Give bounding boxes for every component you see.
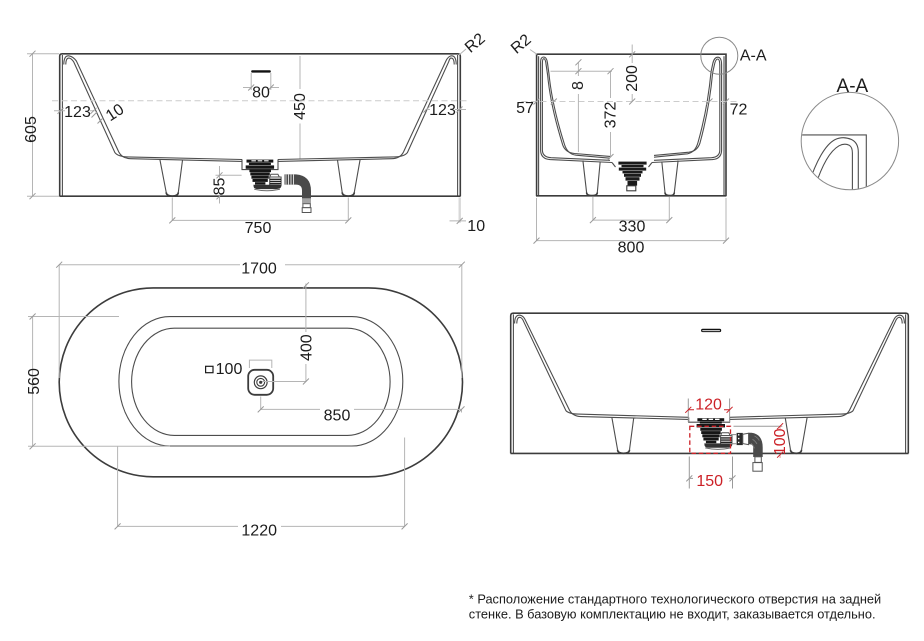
- svg-text:1220: 1220: [241, 523, 277, 540]
- svg-text:85: 85: [212, 178, 229, 196]
- svg-text:100: 100: [772, 428, 789, 455]
- svg-text:800: 800: [618, 240, 645, 257]
- svg-text:A-A: A-A: [837, 76, 869, 97]
- svg-text:123: 123: [429, 102, 456, 119]
- svg-text:57: 57: [516, 100, 534, 117]
- svg-text:стенке. В базовую комплектацию: стенке. В базовую комплектацию не входит…: [469, 607, 876, 622]
- svg-text:80: 80: [252, 85, 270, 102]
- svg-text:400: 400: [299, 334, 316, 361]
- svg-text:200: 200: [624, 65, 641, 92]
- svg-text:* Расположение стандартного те: * Расположение стандартного технологичес…: [469, 591, 881, 606]
- svg-text:8: 8: [570, 81, 587, 90]
- svg-text:150: 150: [696, 473, 723, 490]
- svg-text:372: 372: [603, 102, 620, 129]
- svg-text:605: 605: [23, 116, 40, 143]
- svg-text:750: 750: [245, 220, 272, 237]
- svg-text:560: 560: [26, 368, 43, 395]
- svg-text:A-A: A-A: [740, 48, 767, 65]
- svg-text:1700: 1700: [241, 261, 277, 278]
- svg-text:72: 72: [730, 102, 748, 119]
- svg-text:330: 330: [619, 219, 646, 236]
- svg-text:100: 100: [216, 361, 243, 378]
- svg-text:120: 120: [695, 397, 722, 414]
- svg-text:850: 850: [324, 408, 351, 425]
- svg-text:10: 10: [467, 218, 485, 235]
- svg-text:450: 450: [292, 93, 309, 120]
- svg-text:123: 123: [64, 104, 91, 121]
